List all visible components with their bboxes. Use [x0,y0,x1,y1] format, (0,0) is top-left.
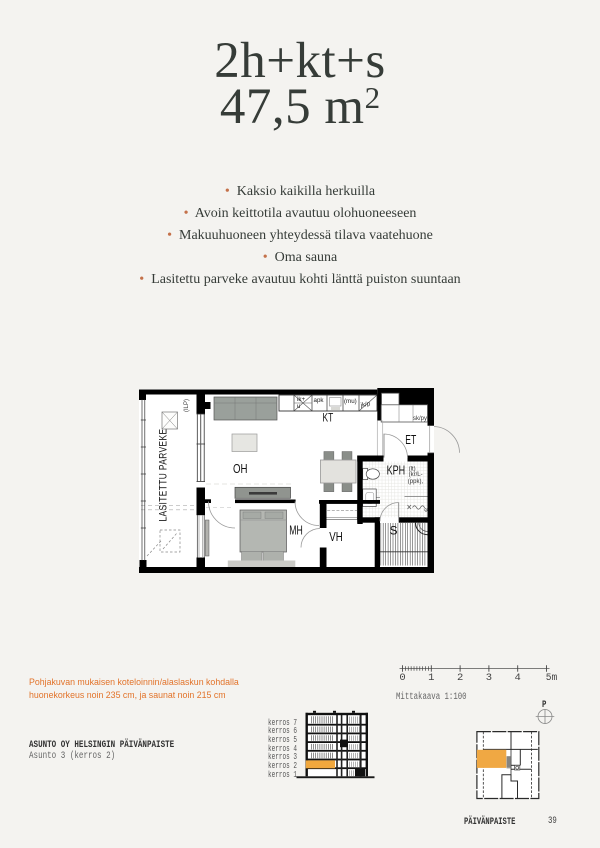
svg-text:(ILP): (ILP) [184,399,190,412]
svg-text:apk: apk [314,397,325,404]
svg-text:0: 0 [399,672,405,684]
svg-text:1: 1 [428,672,434,684]
svg-text:KT: KT [323,411,334,425]
svg-text:MH: MH [289,524,303,538]
svg-text:5m: 5m [546,672,558,684]
svg-text:ET: ET [405,433,416,447]
svg-text:sk/py: sk/py [413,416,427,422]
svg-text:KPH: KPH [387,464,406,478]
svg-text:LASITETTU PARVEKE: LASITETTU PARVEKE [158,429,170,522]
svg-text:2: 2 [457,672,463,684]
svg-text:S: S [390,524,398,538]
svg-text:OH: OH [233,462,248,476]
svg-text:(mu): (mu) [344,398,357,405]
svg-text:(kr/L-: (kr/L- [409,472,423,478]
svg-text:(ppk),: (ppk), [408,479,424,485]
svg-text:VH: VH [329,530,343,544]
svg-text:u: u [297,403,301,410]
svg-text:ik+: ik+ [297,396,305,403]
svg-text:4: 4 [515,672,521,684]
svg-text:3: 3 [486,672,492,684]
